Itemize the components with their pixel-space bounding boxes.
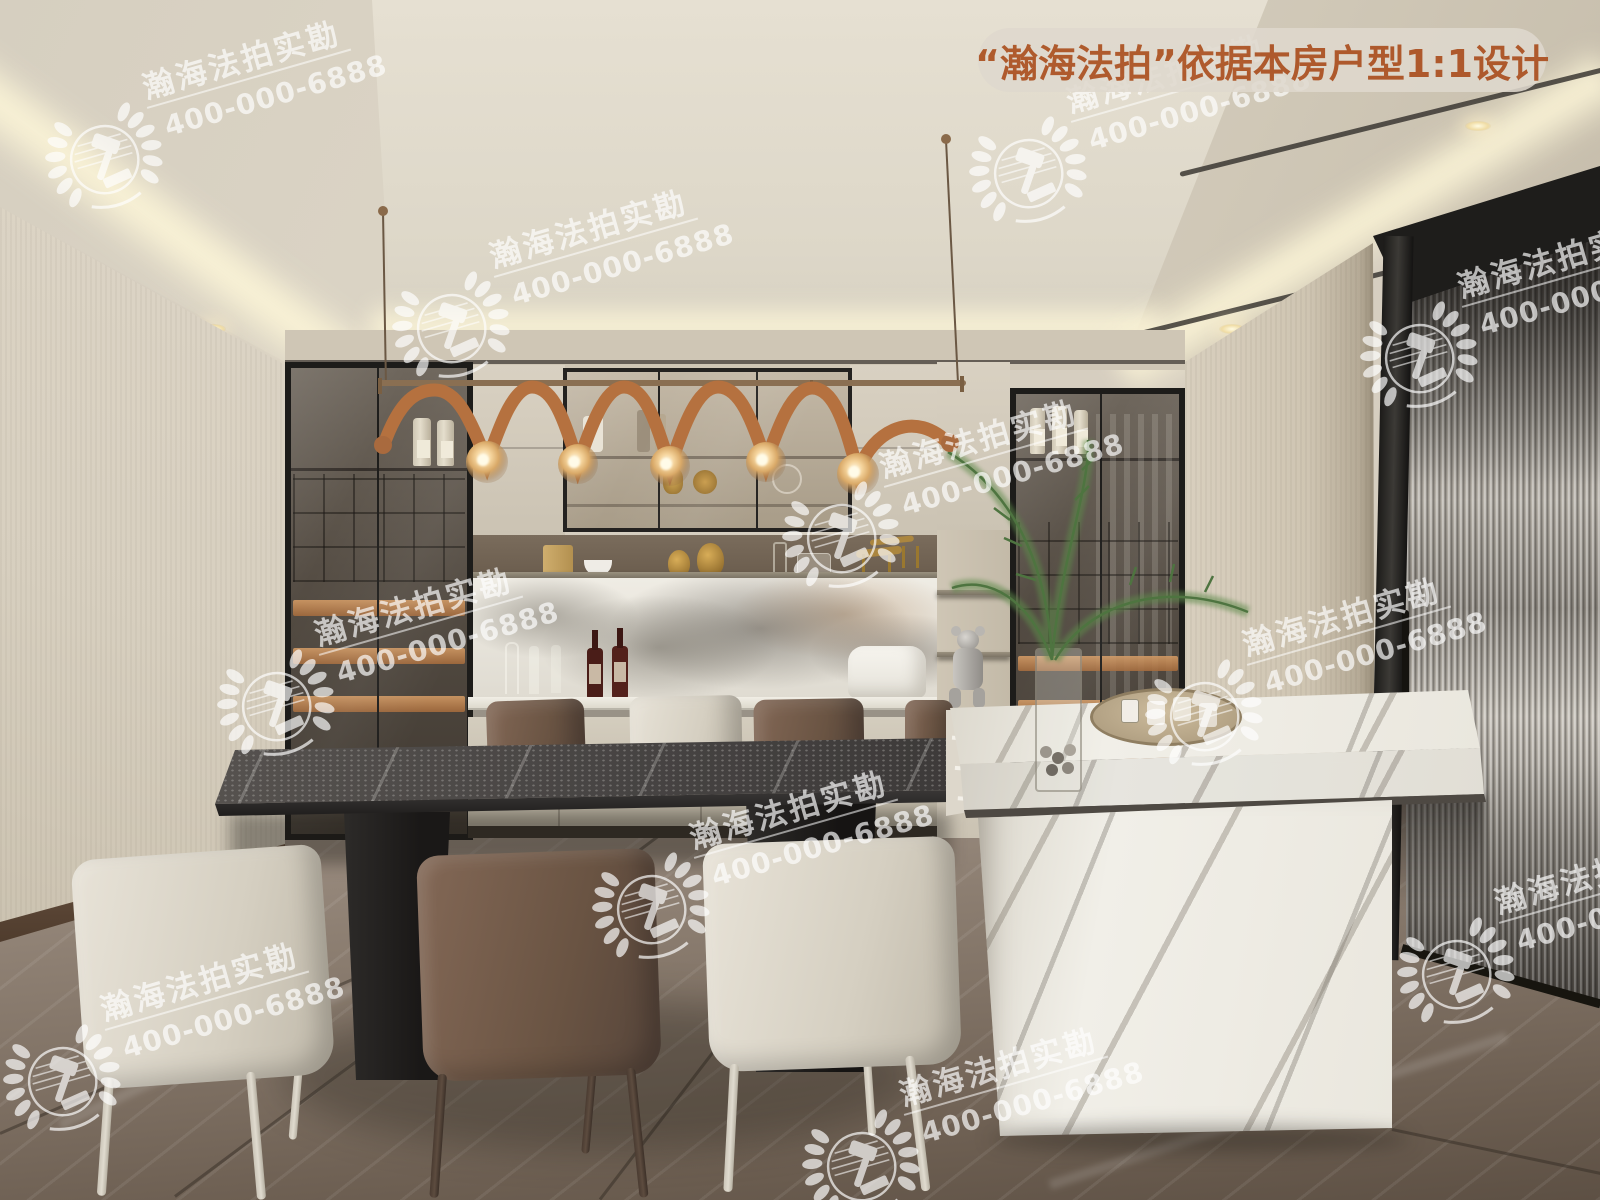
center-glass-display [563,368,852,532]
wine-label [589,664,601,684]
vase-pebbles [1040,746,1052,758]
island-overhang-shadow [1390,796,1485,906]
upper-cabinet-door [473,365,565,535]
island-floor-shadow [990,1126,1410,1152]
interior-photo: 瀚海法拍实勘 400-000-6888 瀚海法拍实勘 400-000-6888 … [0,0,1600,1200]
glass-bottle [773,542,787,576]
wine-bottle-neck [592,630,598,650]
serving-tray [1090,688,1242,746]
wine-glasses [505,642,519,694]
upper-cabinet-door [850,365,937,535]
door-handle [1402,610,1409,702]
glass-vase [1035,648,1082,792]
recessed-spotlight [1465,121,1491,131]
cups-on-tray [1121,699,1139,723]
shelf [937,590,1010,595]
wine-bottle-neck [617,628,623,648]
wine-label [614,662,626,682]
bread-maker-appliance [848,646,926,698]
glass-reflection [567,372,848,528]
bear-figurine [945,630,989,708]
door-seam [850,447,937,449]
promo-badge: “瀚海法拍”依据本房户型1:1设计 [978,28,1546,92]
dining-chair-front [702,836,962,1073]
tall-cabinet-upper [937,362,1010,530]
bear-body [953,648,983,690]
bear-ears [951,626,961,636]
dining-chair-front [416,848,662,1082]
dining-chair-front [70,844,335,1091]
promo-badge-label: “瀚海法拍”依据本房户型1:1设计 [975,33,1549,88]
island-waterfall-base [978,798,1392,1136]
door-seam [473,447,565,449]
